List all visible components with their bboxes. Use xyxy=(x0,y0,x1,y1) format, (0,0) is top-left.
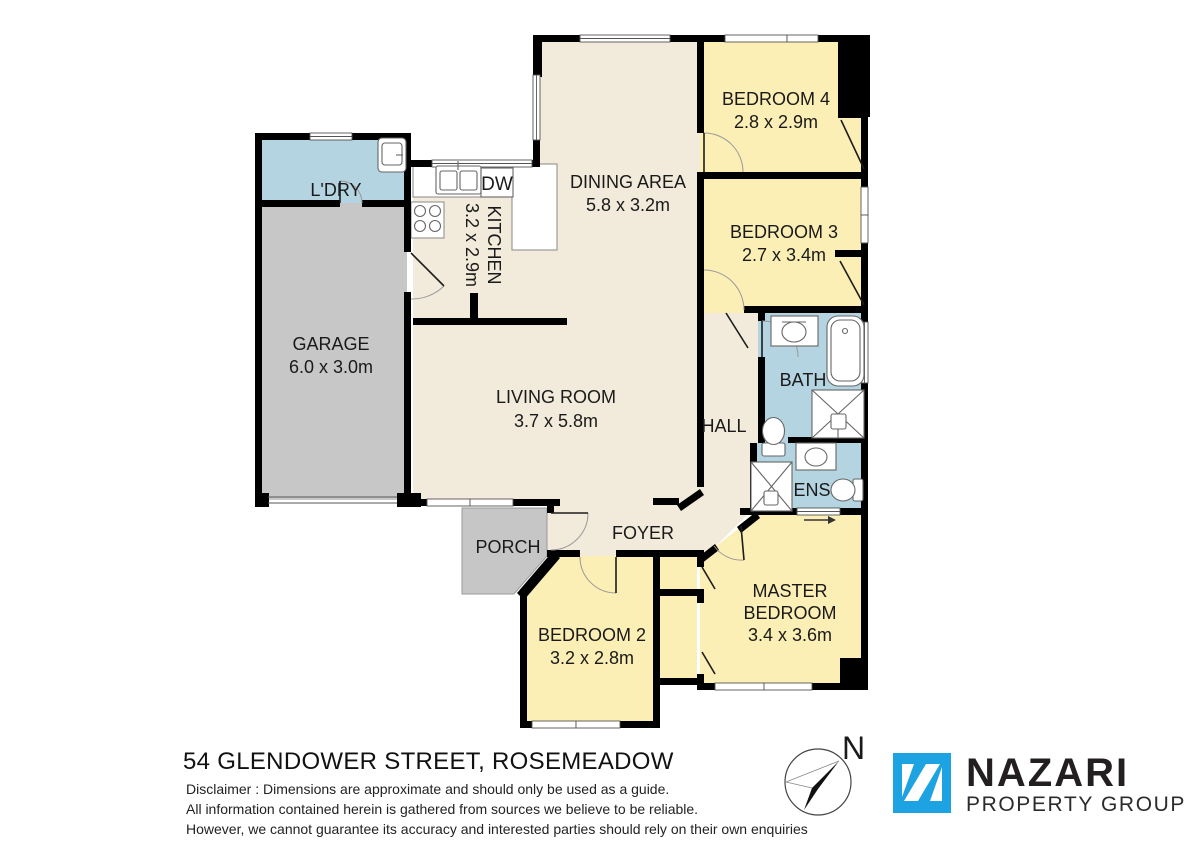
disclaimer-line-3: However, we cannot guarantee its accurac… xyxy=(186,819,808,839)
room-label-bedroom3: BEDROOM 3 xyxy=(730,222,838,242)
floor-plan: L'DRY GARAGE 6.0 x 3.0m KITCHEN 3.2 x 2.… xyxy=(0,0,1200,745)
room-label-ldry: L'DRY xyxy=(310,180,361,200)
room-dims-kitchen: 3.2 x 2.9m xyxy=(462,203,482,287)
room-label-hall: HALL xyxy=(701,416,746,436)
north-label: N xyxy=(842,730,865,766)
logo-name: NAZARI xyxy=(966,753,1186,793)
room-dims-bedroom4: 2.8 x 2.9m xyxy=(734,112,818,132)
floor-plan-page: L'DRY GARAGE 6.0 x 3.0m KITCHEN 3.2 x 2.… xyxy=(0,0,1200,850)
room-label-bath: BATH xyxy=(780,370,827,390)
logo-mark-icon xyxy=(893,753,951,813)
kitchen-sink-icon xyxy=(436,161,481,194)
room-label-master-1: MASTER xyxy=(752,581,827,601)
room-label-bedroom2: BEDROOM 2 xyxy=(538,625,646,645)
room-label-porch: PORCH xyxy=(475,537,540,557)
room-dims-bedroom2: 3.2 x 2.8m xyxy=(550,648,634,668)
ens-toilet-icon xyxy=(831,479,863,501)
bath-toilet-icon xyxy=(762,418,785,457)
ens-shower-icon xyxy=(751,462,792,511)
room-dims-garage: 6.0 x 3.0m xyxy=(289,357,373,377)
logo-tagline: PROPERTY GROUP xyxy=(966,793,1186,817)
bathtub-icon xyxy=(827,316,864,386)
ens-sink-icon xyxy=(796,443,836,470)
bath-sink-icon xyxy=(771,316,818,346)
room-dims-dining: 5.8 x 3.2m xyxy=(586,195,670,215)
room-master-robes xyxy=(660,556,697,684)
slider-door xyxy=(797,508,840,515)
room-label-dining: DINING AREA xyxy=(570,172,686,192)
disclaimer-line-1: Disclaimer : Dimensions are approximate … xyxy=(186,779,808,799)
room-label-master-2: BEDROOM xyxy=(743,603,836,623)
room-dims-bedroom3: 2.7 x 3.4m xyxy=(742,245,826,265)
logo-text: NAZARI PROPERTY GROUP xyxy=(966,753,1186,817)
room-label-living: LIVING ROOM xyxy=(496,387,616,407)
room-label-garage: GARAGE xyxy=(292,334,369,354)
logo: NAZARI PROPERTY GROUP xyxy=(893,753,1186,817)
room-bedroom3 xyxy=(700,175,866,313)
address: 54 GLENDOWER STREET, ROSEMEADOW xyxy=(183,748,674,776)
room-dims-living: 3.7 x 5.8m xyxy=(514,411,598,431)
room-dims-master: 3.4 x 3.6m xyxy=(748,625,832,645)
disclaimer-line-2: All information contained herein is gath… xyxy=(186,799,808,819)
room-label-kitchen: KITCHEN xyxy=(484,205,504,284)
bath-shower-icon xyxy=(812,390,864,438)
room-label-bedroom4: BEDROOM 4 xyxy=(722,89,830,109)
laundry-tub-icon xyxy=(378,138,406,172)
room-label-ens: ENS xyxy=(793,480,830,500)
dishwasher-label: DW xyxy=(481,174,513,195)
disclaimer: Disclaimer : Dimensions are approximate … xyxy=(186,779,808,839)
room-label-foyer: FOYER xyxy=(612,523,674,543)
